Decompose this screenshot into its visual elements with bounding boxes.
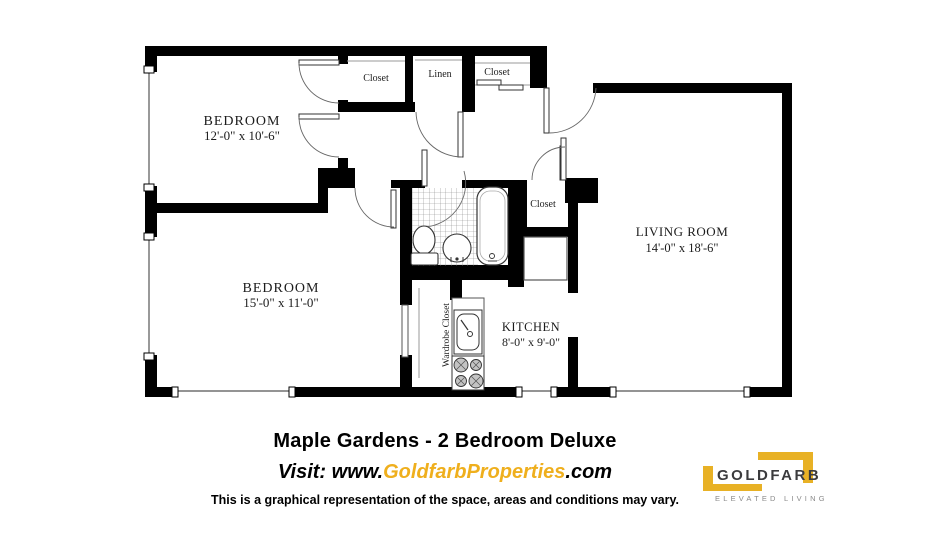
bathroom-sink-icon xyxy=(443,234,471,262)
living-room-label: LIVING ROOM xyxy=(636,224,729,239)
bedroom2-label: BEDROOM xyxy=(242,281,319,296)
kitchen-sink-icon xyxy=(454,310,482,354)
closet-top-label: Closet xyxy=(363,73,389,84)
logo-tagline: ELEVATED LIVING xyxy=(715,494,828,503)
living-room-dims: 14'-0" x 18'-6" xyxy=(645,241,718,255)
bedroom1-closet-door xyxy=(299,60,339,65)
wardrobe-closet-label: Wardrobe Closet xyxy=(442,303,452,367)
logo-bracket-bottom xyxy=(703,484,762,491)
bedroom1-door xyxy=(299,114,339,119)
kitchen-dims: 8'-0" x 9'-0" xyxy=(502,335,560,349)
goldfarb-logo: GOLDFARB ELEVATED LIVING xyxy=(700,448,860,512)
fridge-icon xyxy=(524,237,567,280)
closet-entry-label: Closet xyxy=(484,67,510,78)
bathroom-door xyxy=(422,150,427,186)
bedroom1-dims: 12'-0" x 10'-6" xyxy=(204,128,280,143)
bedroom2-dims: 15'-0" x 11'-0" xyxy=(243,295,318,310)
visit-suffix: .com xyxy=(565,461,612,483)
visit-prefix: Visit: www. xyxy=(278,461,383,483)
closet-linen-label: Linen xyxy=(428,69,451,80)
visit-brand[interactable]: GoldfarbProperties xyxy=(383,461,565,483)
floorplan-drawing: BEDROOM 12'-0" x 10'-6" BEDROOM 15'-0" x… xyxy=(0,0,934,420)
bathtub-icon xyxy=(477,187,508,265)
foyer-partition xyxy=(561,138,566,180)
wardrobe-slider xyxy=(402,305,408,357)
logo-wordmark: GOLDFARB xyxy=(717,467,821,484)
bathroom xyxy=(411,187,508,266)
bedroom2-door xyxy=(391,190,396,228)
closet-hall-label: Closet xyxy=(530,199,556,210)
entry-door xyxy=(544,88,549,133)
linen-door xyxy=(458,112,463,157)
kitchen-label: KITCHEN xyxy=(502,320,560,334)
bedroom1-label: BEDROOM xyxy=(203,114,280,129)
entry-closet-slider xyxy=(475,80,530,90)
stove-icon xyxy=(452,356,484,390)
floorplan-page: BEDROOM 12'-0" x 10'-6" BEDROOM 15'-0" x… xyxy=(0,0,934,560)
